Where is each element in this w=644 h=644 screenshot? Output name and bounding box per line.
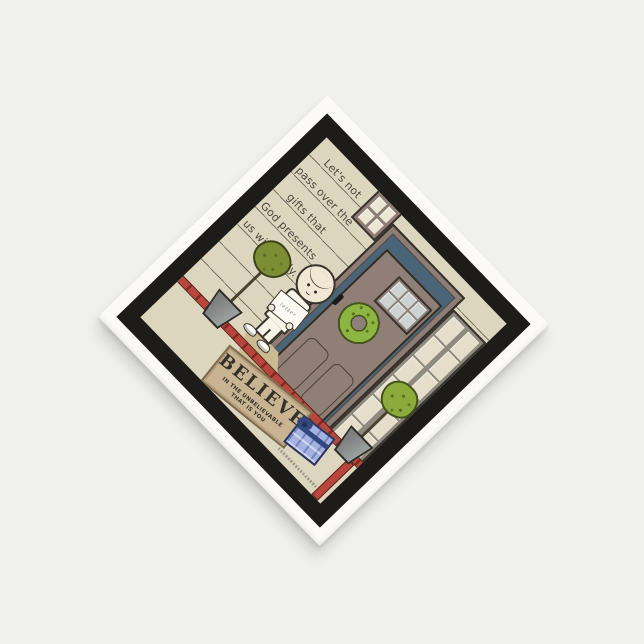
artwork-canvas: Let's not pass over the gifts that God p… [140, 137, 506, 503]
bush-texture [401, 394, 405, 398]
wreath-texture [366, 313, 370, 317]
bush-texture [274, 253, 278, 257]
figure-shoe [241, 321, 259, 339]
paper-napkin: Let's not pass over the gifts that God p… [98, 95, 549, 546]
napkin-product-photo: Let's not pass over the gifts that God p… [0, 0, 644, 644]
